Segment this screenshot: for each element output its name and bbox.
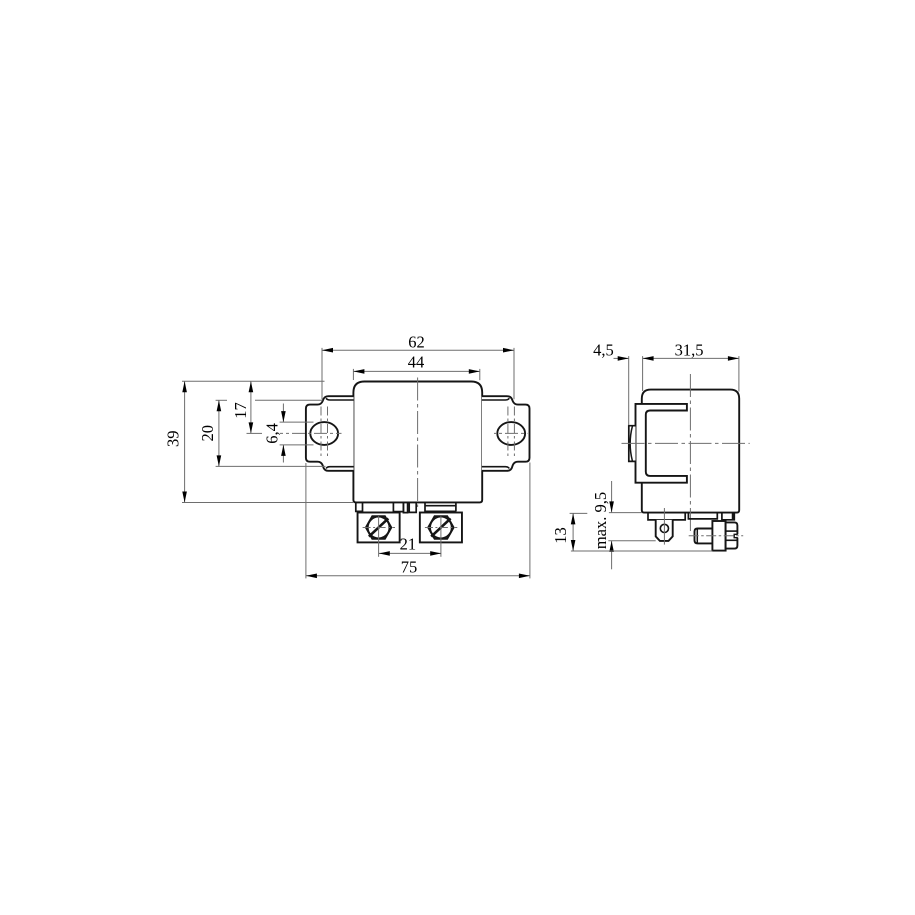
svg-text:4,5: 4,5 bbox=[593, 341, 614, 360]
svg-text:6,4: 6,4 bbox=[262, 423, 281, 444]
svg-text:44: 44 bbox=[408, 353, 425, 372]
svg-text:20: 20 bbox=[198, 425, 217, 442]
svg-text:21: 21 bbox=[400, 535, 417, 554]
svg-text:39: 39 bbox=[163, 430, 182, 447]
svg-text:75: 75 bbox=[401, 557, 418, 576]
svg-text:17: 17 bbox=[231, 402, 250, 419]
svg-text:max. 9,5: max. 9,5 bbox=[591, 492, 610, 549]
svg-text:31,5: 31,5 bbox=[675, 340, 704, 359]
svg-text:62: 62 bbox=[408, 333, 425, 352]
svg-text:13: 13 bbox=[551, 527, 570, 544]
